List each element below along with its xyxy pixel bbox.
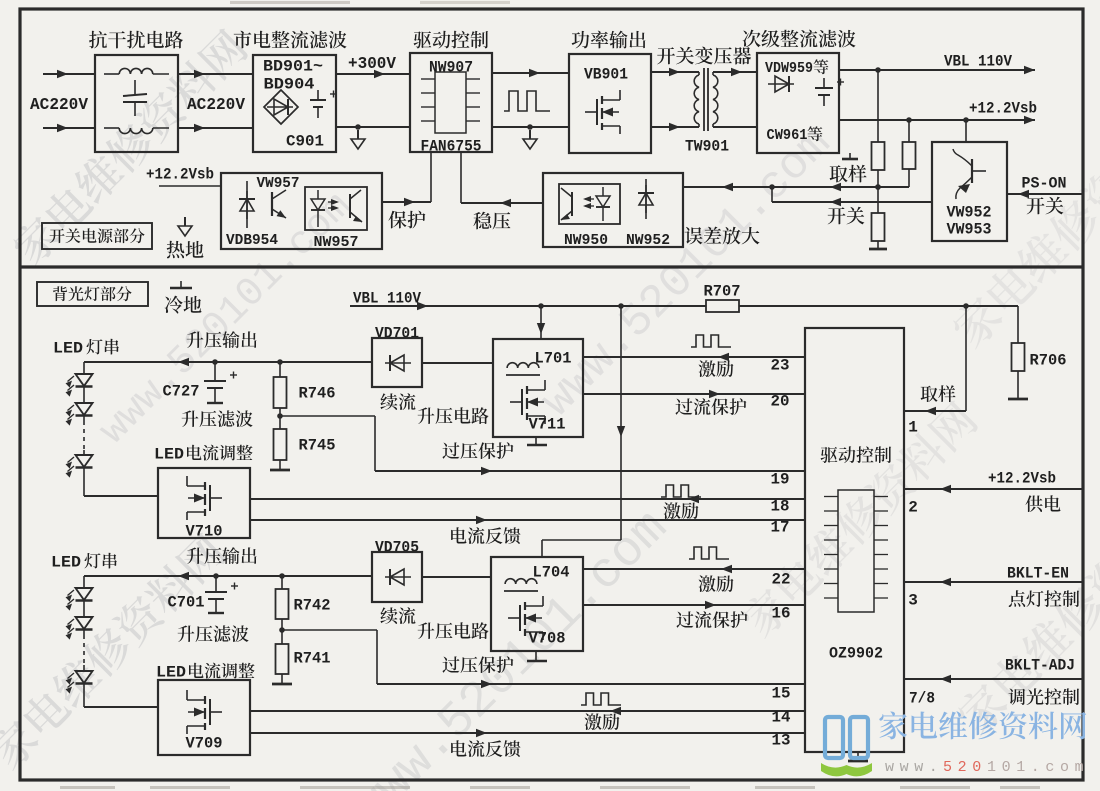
svg-text:22: 22	[772, 571, 791, 589]
svg-text:CW961: CW961	[767, 127, 808, 144]
svg-text:L704: L704	[533, 564, 570, 582]
svg-text:14: 14	[772, 709, 791, 727]
svg-text:18: 18	[771, 498, 790, 516]
svg-text:VB901: VB901	[584, 66, 628, 84]
svg-text:BD904: BD904	[264, 76, 315, 94]
svg-text:BD901~: BD901~	[263, 58, 323, 76]
svg-text:+300V: +300V	[348, 55, 397, 74]
svg-text:V711: V711	[529, 416, 566, 434]
svg-text:VDW959: VDW959	[765, 60, 813, 77]
svg-text:LED: LED	[154, 446, 184, 464]
svg-text:VBL 110V: VBL 110V	[944, 53, 1012, 71]
svg-text:PS-ON: PS-ON	[1022, 175, 1067, 193]
svg-text:C901: C901	[286, 133, 324, 151]
svg-text:15: 15	[772, 685, 791, 703]
svg-text:1: 1	[908, 419, 918, 437]
svg-text:BKLT-ADJ: BKLT-ADJ	[1005, 657, 1075, 675]
svg-text:R745: R745	[299, 437, 336, 455]
svg-text:+12.2Vsb: +12.2Vsb	[969, 100, 1037, 118]
svg-text:V710: V710	[186, 523, 223, 541]
svg-text:C701: C701	[168, 594, 205, 612]
svg-text:2: 2	[908, 499, 918, 517]
svg-text:19: 19	[771, 471, 790, 489]
svg-text:V709: V709	[186, 735, 223, 753]
svg-text:C727: C727	[163, 383, 200, 401]
svg-text:520: 520	[943, 759, 987, 776]
svg-text:17: 17	[771, 519, 790, 537]
svg-text:V708: V708	[529, 630, 566, 648]
svg-text:VBL 110V: VBL 110V	[353, 290, 421, 308]
svg-text:13: 13	[772, 732, 791, 750]
svg-text:R746: R746	[299, 385, 336, 403]
svg-text:LED: LED	[156, 664, 186, 682]
svg-text:FAN6755: FAN6755	[421, 138, 482, 156]
svg-text:VDB954: VDB954	[226, 232, 278, 249]
svg-text:+12.2Vsb: +12.2Vsb	[988, 470, 1056, 488]
svg-text:VW957: VW957	[257, 175, 300, 192]
svg-text:LED: LED	[53, 340, 83, 358]
svg-text:VW952: VW952	[947, 204, 992, 222]
svg-text:TW901: TW901	[685, 138, 729, 156]
svg-text:7/8: 7/8	[909, 690, 935, 708]
svg-text:23: 23	[771, 357, 790, 375]
svg-text:OZ9902: OZ9902	[829, 645, 883, 663]
svg-text:+12.2Vsb: +12.2Vsb	[146, 166, 214, 184]
svg-text:R742: R742	[294, 597, 331, 615]
svg-text:NW957: NW957	[314, 234, 359, 251]
svg-text:R706: R706	[1030, 352, 1067, 370]
svg-text:VD705: VD705	[375, 539, 419, 557]
svg-text:R741: R741	[294, 650, 331, 668]
svg-text:101.com: 101.com	[987, 759, 1089, 776]
svg-text:BKLT-EN: BKLT-EN	[1007, 565, 1069, 583]
svg-text:AC220V: AC220V	[187, 96, 246, 115]
svg-text:16: 16	[772, 605, 791, 623]
svg-text:www.: www.	[885, 759, 943, 776]
svg-text:NW950: NW950	[564, 232, 608, 249]
svg-text:3: 3	[908, 592, 918, 610]
svg-text:VW953: VW953	[947, 221, 992, 239]
svg-text:20: 20	[771, 393, 790, 411]
svg-text:VD701: VD701	[375, 325, 419, 343]
svg-text:NW952: NW952	[626, 232, 670, 249]
svg-text:R707: R707	[704, 283, 741, 301]
svg-text:L701: L701	[535, 350, 572, 368]
svg-text:LED: LED	[51, 554, 81, 572]
svg-text:AC220V: AC220V	[30, 96, 89, 115]
